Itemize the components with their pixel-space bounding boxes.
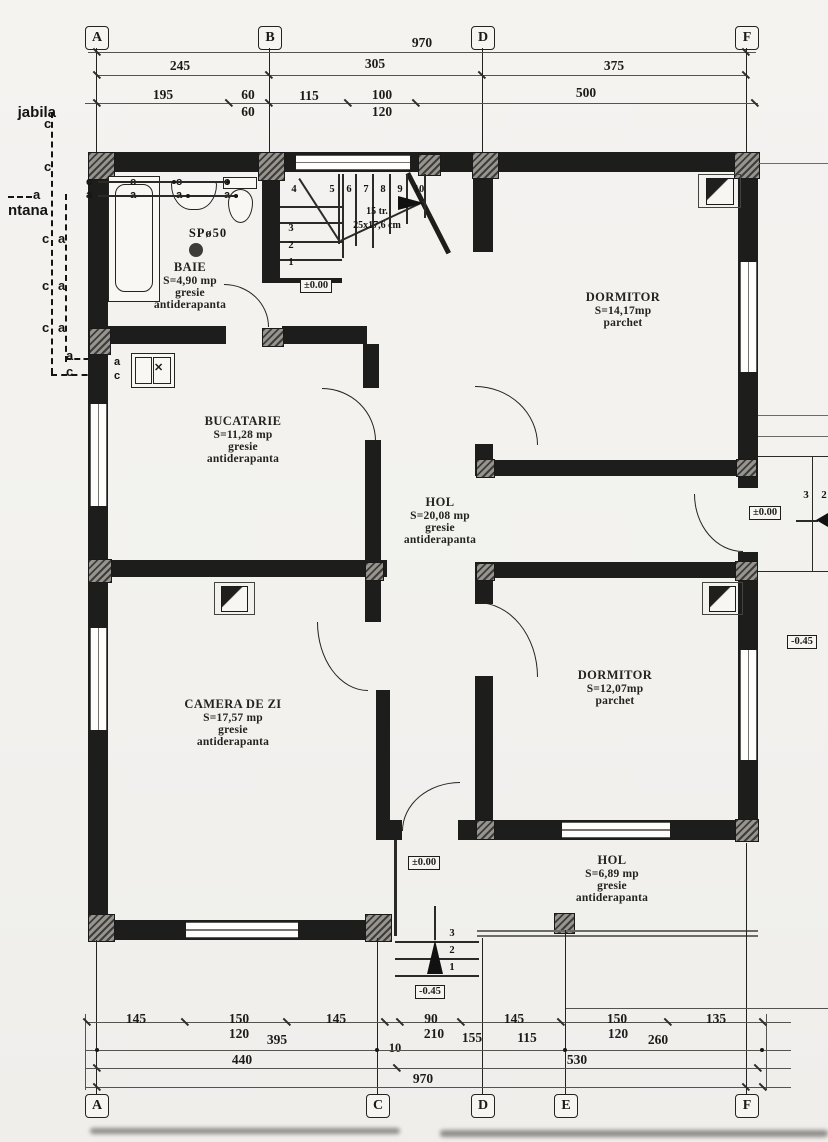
pipe-a-label: a xyxy=(58,232,65,246)
dim-label: 305 xyxy=(345,57,405,71)
scan-artifact xyxy=(90,1128,400,1134)
window-hol-south xyxy=(562,822,670,838)
pipe-a-label: a xyxy=(33,188,40,202)
room-finish: gresie xyxy=(181,441,305,453)
dim-label: 115 xyxy=(289,89,329,103)
door-arc-kitchen xyxy=(322,388,376,441)
porch-line xyxy=(758,456,828,457)
dim-line xyxy=(85,1087,791,1088)
column xyxy=(89,328,111,355)
south-step-num: 3 xyxy=(446,928,458,940)
wall-dorm2-left xyxy=(475,676,493,822)
south-step-num: 1 xyxy=(446,962,458,974)
pipe-label-cut-mid: ntana xyxy=(0,204,48,218)
dim-label: 150 xyxy=(587,1012,647,1026)
room-name: DORMITOR xyxy=(561,290,685,305)
dim-node xyxy=(375,1048,379,1052)
room-name: HOL xyxy=(550,853,674,868)
line xyxy=(758,436,828,437)
room-finish: antiderapanta xyxy=(170,736,296,748)
wall-kitchen-right xyxy=(363,344,379,388)
porch-edge-line xyxy=(477,935,758,937)
east-step-num: 3 xyxy=(800,489,812,501)
dim-label: 970 xyxy=(396,36,448,50)
room-hol-south: HOL S=6,89 mp gresie antiderapanta xyxy=(550,853,674,904)
stair-num: 9 xyxy=(394,184,406,196)
room-finish: antiderapanta xyxy=(550,892,674,904)
room-hol: HOL S=20,08 mp gresie antiderapanta xyxy=(378,495,502,546)
window-dorm1 xyxy=(740,262,757,372)
pipe-c-label: c xyxy=(42,232,49,246)
dim-label: 145 xyxy=(484,1012,544,1026)
grid-marker-top-a: A xyxy=(85,26,109,50)
drain-cross-icon: ✕ xyxy=(154,361,163,374)
column xyxy=(472,152,499,179)
room-camera-de-zi: CAMERA DE ZI S=17,57 mp gresie antiderap… xyxy=(170,697,296,748)
direction-arrow-left xyxy=(816,513,828,527)
dim-label: 145 xyxy=(306,1012,366,1026)
grid-line xyxy=(96,940,97,1094)
dim-line xyxy=(88,52,756,53)
tap-c-label: c xyxy=(114,369,120,383)
dim-label: 10 xyxy=(382,1041,408,1055)
wall-kitchen-living xyxy=(88,560,387,577)
grid-marker-bottom-e: E xyxy=(554,1094,578,1118)
wall-dorm2-left xyxy=(475,578,493,604)
pipe-c-label: c xyxy=(66,365,73,379)
south-step-num: 2 xyxy=(446,945,458,957)
level-marker-zero: ±0.00 xyxy=(300,279,332,293)
pipe-node xyxy=(172,180,176,184)
room-finish: antiderapanta xyxy=(138,299,242,311)
grid-line xyxy=(269,48,270,152)
room-area: S=20,08 mp xyxy=(378,510,502,522)
level-marker-zero: ±0.00 xyxy=(408,856,440,870)
pipe-c-label: c xyxy=(44,117,51,131)
stair-tread xyxy=(424,174,426,218)
dim-label: 90 xyxy=(415,1012,447,1026)
room-finish: gresie xyxy=(170,724,296,736)
stair-note: 25x17,6 cm xyxy=(336,220,418,232)
stair-num: 4 xyxy=(288,184,300,196)
wall-baie-bottom xyxy=(282,326,367,344)
column xyxy=(88,914,115,942)
room-area: S=11,28 mp xyxy=(181,429,305,441)
flue-icon xyxy=(706,178,734,205)
wall-dorm2-top xyxy=(475,562,758,578)
column xyxy=(365,562,384,581)
dim-label: 530 xyxy=(547,1053,607,1067)
floor-drain-icon xyxy=(189,243,203,257)
wall-hall-left xyxy=(376,690,390,822)
grid-marker-top-b: B xyxy=(258,26,282,50)
door-arc-entry-south xyxy=(402,782,460,831)
room-dormitor-2: DORMITOR S=12,07mp parchet xyxy=(553,668,677,707)
room-finish: gresie xyxy=(138,287,242,299)
dim-label: 100 xyxy=(362,88,402,102)
window-stair xyxy=(296,155,410,170)
room-name: HOL xyxy=(378,495,502,510)
dim-node xyxy=(95,1048,99,1052)
grid-line xyxy=(746,48,747,152)
column xyxy=(476,563,495,581)
room-bucatarie: BUCATARIE S=11,28 mp gresie antiderapant… xyxy=(181,414,305,465)
dim-label: 245 xyxy=(150,59,210,73)
dim-closure xyxy=(85,1014,86,1090)
room-finish: antiderapanta xyxy=(378,534,502,546)
column xyxy=(476,820,495,840)
dim-line xyxy=(85,1050,791,1051)
dim-line xyxy=(566,1008,828,1009)
column xyxy=(262,328,284,347)
grid-line xyxy=(746,843,747,1094)
exterior-step xyxy=(395,975,479,977)
dim-label: 195 xyxy=(133,88,193,102)
stair-num: 1 xyxy=(285,257,297,269)
dim-label: 260 xyxy=(628,1033,688,1047)
grid-marker-bottom-d: D xyxy=(471,1094,495,1118)
porch-edge-line xyxy=(477,930,758,932)
pipe-c-label: c xyxy=(42,321,49,335)
door-arc-dorm1 xyxy=(475,386,538,445)
dim-label: 970 xyxy=(395,1072,451,1086)
pipe-a-label: a xyxy=(58,279,65,293)
room-finish: parchet xyxy=(553,695,677,707)
grid-marker-bottom-f: F xyxy=(735,1094,759,1118)
kitchen-sink-bowl xyxy=(135,357,152,384)
room-finish: gresie xyxy=(378,522,502,534)
dim-line xyxy=(85,1068,791,1069)
dim-label: 60 xyxy=(228,105,268,119)
porch-line xyxy=(758,571,828,572)
room-name: BAIE xyxy=(138,260,242,275)
stair-num: 3 xyxy=(285,223,297,235)
room-area: S=6,89 mp xyxy=(550,868,674,880)
stair-num: 8 xyxy=(377,184,389,196)
grid-marker-bottom-a: A xyxy=(85,1094,109,1118)
pipe-line-water xyxy=(65,194,67,362)
wall-exterior-left xyxy=(88,152,108,940)
pipe-c-label: c xyxy=(42,279,49,293)
dim-label: 115 xyxy=(502,1031,552,1045)
dim-label: 60 xyxy=(228,88,268,102)
room-name: DORMITOR xyxy=(553,668,677,683)
column xyxy=(365,914,392,942)
column xyxy=(735,561,758,581)
room-baie: BAIE S=4,90 mp gresie antiderapanta xyxy=(138,260,242,311)
column xyxy=(258,152,285,181)
arrow-shaft xyxy=(796,520,818,522)
room-dormitor-1: DORMITOR S=14,17mp parchet xyxy=(561,290,685,329)
stair-num: 5 xyxy=(326,184,338,196)
pipe-node xyxy=(234,194,238,198)
arrow-shaft xyxy=(434,906,436,940)
level-marker-minus: -0.45 xyxy=(787,635,817,649)
window-dorm2 xyxy=(740,650,757,760)
dim-label: 500 xyxy=(556,86,616,100)
pipe-line xyxy=(8,196,32,198)
room-name: BUCATARIE xyxy=(181,414,305,429)
dim-label: 150 xyxy=(209,1012,269,1026)
stair-tread xyxy=(280,206,342,208)
wall-stairwell-d xyxy=(473,172,493,252)
dim-node xyxy=(760,1048,764,1052)
pipe-node xyxy=(226,180,230,184)
tap-a-label: a xyxy=(114,355,120,369)
porch-edge xyxy=(394,840,397,936)
room-area: S=4,90 mp xyxy=(138,275,242,287)
room-area: S=17,57 mp xyxy=(170,712,296,724)
scan-artifact xyxy=(440,1130,828,1137)
pipe-leader xyxy=(98,181,230,183)
level-marker-zero: ±0.00 xyxy=(749,506,781,520)
door-arc-living xyxy=(317,622,368,691)
grid-marker-top-f: F xyxy=(735,26,759,50)
pipe-node xyxy=(186,194,190,198)
window-kitchen xyxy=(90,404,107,506)
porch-line xyxy=(812,456,813,572)
room-finish: parchet xyxy=(561,317,685,329)
tap-c-label: c xyxy=(86,175,92,189)
dim-line xyxy=(97,75,747,76)
wall-stair xyxy=(262,172,280,282)
tap-a-label: a xyxy=(86,188,92,202)
pipe-c-label: c xyxy=(44,160,51,174)
column xyxy=(418,154,441,176)
wall-baie-bottom xyxy=(108,326,226,344)
door-arc-dorm2 xyxy=(477,602,538,677)
dim-line xyxy=(85,103,758,104)
wall-hol-dorm1 xyxy=(493,460,758,476)
flue-icon xyxy=(709,586,736,612)
stair-num: 2 xyxy=(285,240,297,252)
dim-label: 120 xyxy=(362,105,402,119)
stair-num: 6 xyxy=(343,184,355,196)
level-marker-minus: -0.45 xyxy=(415,985,445,999)
pipe-a-label: a xyxy=(66,349,73,363)
column xyxy=(88,559,112,583)
dim-label: 375 xyxy=(584,59,644,73)
grid-marker-bottom-c: C xyxy=(366,1094,390,1118)
room-name: CAMERA DE ZI xyxy=(170,697,296,712)
line xyxy=(758,163,828,164)
room-finish: antiderapanta xyxy=(181,453,305,465)
stair-num: 10 xyxy=(410,184,428,196)
pipe-a-label: a xyxy=(58,321,65,335)
dim-label: 155 xyxy=(447,1031,497,1045)
direction-arrow-up xyxy=(427,940,443,974)
column xyxy=(476,459,495,478)
line xyxy=(758,415,828,416)
stair-num: 7 xyxy=(360,184,372,196)
window-living-left xyxy=(90,628,107,730)
grid-line xyxy=(482,48,483,152)
floor-plan-canvas: A B D F 970 245 305 375 195 60 115 100 5… xyxy=(0,0,828,1142)
door-arc-entry-east xyxy=(694,494,743,552)
grid-line xyxy=(565,930,566,1094)
column xyxy=(736,459,757,477)
dim-label: 145 xyxy=(106,1012,166,1026)
pipe-line-cold xyxy=(51,112,53,374)
room-area: S=14,17mp xyxy=(561,305,685,317)
dim-label: 135 xyxy=(686,1012,746,1026)
east-step-num: 2 xyxy=(818,489,828,501)
floor-drain-label: SPø50 xyxy=(176,226,240,240)
grid-line xyxy=(377,938,378,1094)
dim-label: 395 xyxy=(249,1033,305,1047)
wall-entry xyxy=(376,820,402,840)
room-finish: gresie xyxy=(550,880,674,892)
stair-note: 15 tr. xyxy=(352,206,402,218)
grid-marker-top-d: D xyxy=(471,26,495,50)
pipe-leader xyxy=(98,195,238,197)
window-living-bottom xyxy=(186,922,298,938)
stair-tread xyxy=(338,174,340,244)
column xyxy=(735,819,759,842)
dim-label: 440 xyxy=(212,1053,272,1067)
flue-icon xyxy=(221,586,248,612)
room-area: S=12,07mp xyxy=(553,683,677,695)
